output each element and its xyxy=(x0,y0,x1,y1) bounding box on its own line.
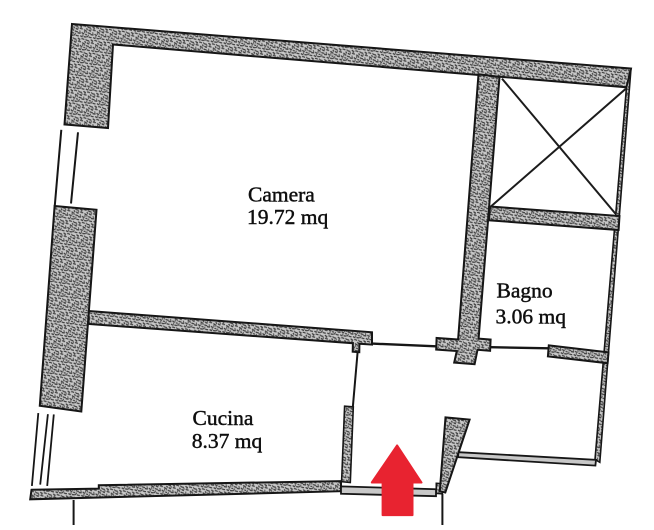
svg-text:3.06 mq: 3.06 mq xyxy=(496,305,567,329)
svg-text:Camera: Camera xyxy=(248,183,315,207)
svg-text:19.72 mq: 19.72 mq xyxy=(247,205,328,229)
svg-text:Bagno: Bagno xyxy=(497,279,553,303)
svg-text:Cucina: Cucina xyxy=(193,406,254,430)
svg-text:8.37 mq: 8.37 mq xyxy=(192,429,263,453)
